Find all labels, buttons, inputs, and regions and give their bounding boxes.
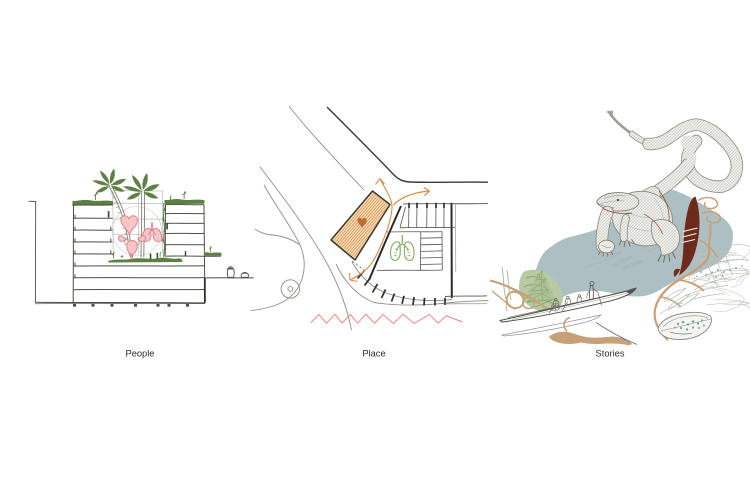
svg-text:People: People: [126, 349, 155, 359]
svg-text:Stories: Stories: [596, 349, 625, 359]
svg-text:Place: Place: [362, 349, 385, 359]
